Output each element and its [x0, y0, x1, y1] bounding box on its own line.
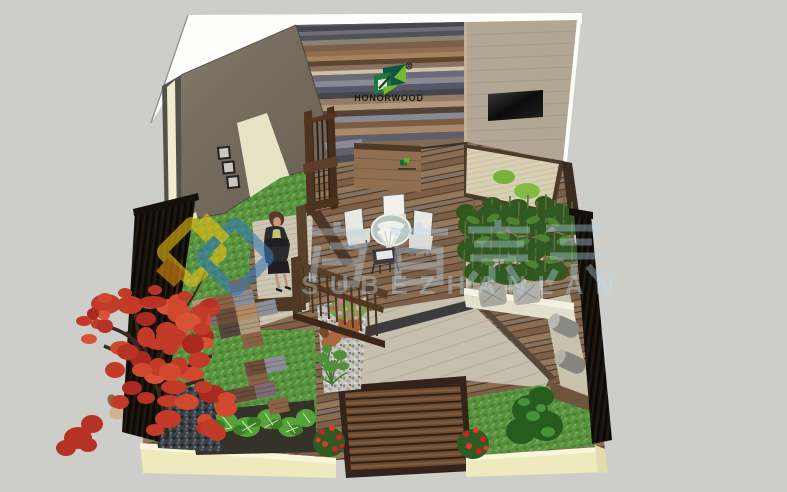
svg-text:HONORWOOD: HONORWOOD	[354, 93, 424, 103]
svg-text:SUBEZHANLAN: SUBEZHANLAN	[301, 270, 625, 300]
